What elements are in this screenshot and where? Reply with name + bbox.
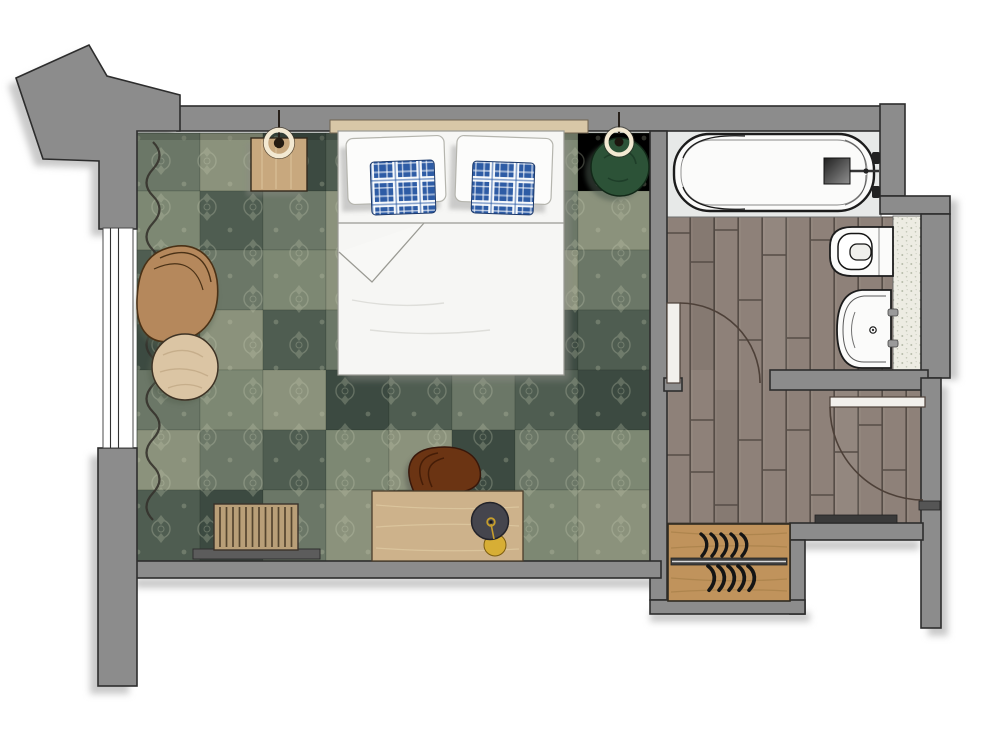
toilet [830, 227, 893, 276]
window [103, 228, 133, 448]
wardrobe-shelf [668, 524, 790, 601]
pendant-lamp-left [263, 127, 294, 158]
floor-plan-canvas [0, 0, 1000, 732]
wall-cap [919, 501, 940, 510]
double-bed [338, 131, 570, 381]
wall-bedroom-bottom [135, 561, 661, 578]
wall-vanity-partition [770, 370, 928, 390]
wall-left-lower [98, 448, 137, 686]
pillow-plaid-left [370, 160, 436, 215]
wall-tub-right [880, 104, 905, 196]
pillow-plaid-right [471, 161, 535, 215]
armchair [136, 246, 218, 348]
wall-wardrobe-base [650, 600, 805, 614]
wall-divider [650, 131, 667, 600]
wall-right-upper [921, 214, 950, 378]
washbasin [837, 290, 898, 368]
floor-plan-drawing [0, 0, 1000, 732]
wall-vestibule-top [790, 523, 923, 540]
entry-threshold [815, 515, 897, 523]
wall-step-band [880, 196, 950, 214]
